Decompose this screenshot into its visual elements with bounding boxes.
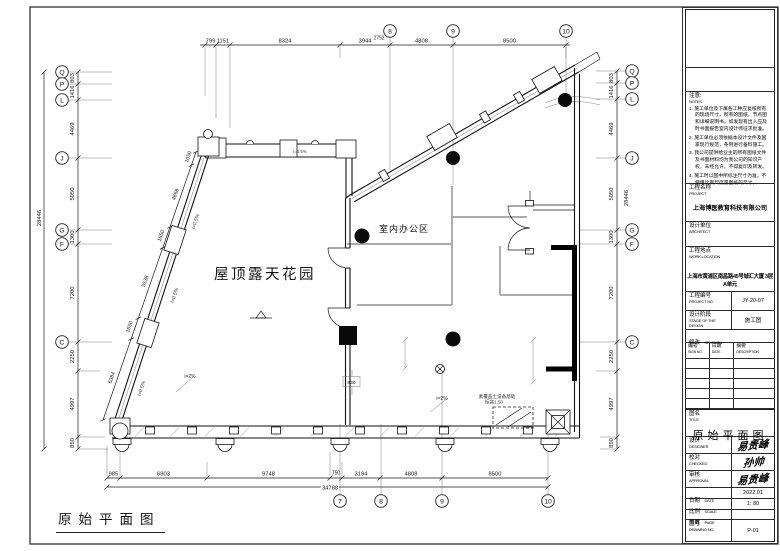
column-dot bbox=[558, 93, 572, 107]
titleblock-location: 工程地点 WORK LOCATION 上海市黄浦区南昌路45号城汇大厦 3层A单… bbox=[686, 247, 774, 292]
room-label-garden: 屋顶露天花园 bbox=[214, 266, 316, 283]
titleblock-project: 工程名称 PROJECT 上海博医教育科技有限公司 bbox=[686, 184, 774, 222]
titleblock-project-no: 工程编号PROJECT NO. JY-20-07 bbox=[686, 292, 774, 311]
sheet-border bbox=[30, 7, 778, 544]
note-item: 3. 我公司提供给业主的所有图纸文件及书面材料均为我公司的知识产权，未经允许，不… bbox=[689, 151, 771, 171]
dim-text: 850 bbox=[609, 438, 615, 448]
equipment-foundation bbox=[493, 407, 533, 428]
dim-text: 6803 bbox=[157, 472, 170, 478]
dim-text: 5050 bbox=[70, 188, 76, 201]
slope-label: i=0.5% bbox=[293, 149, 307, 154]
dim-text: 803 bbox=[70, 73, 76, 83]
grid-bubble-label: G bbox=[629, 227, 634, 234]
equipment-level-label: 标高1.50 bbox=[485, 399, 504, 406]
revision-empty-row bbox=[686, 399, 774, 409]
scale-value: 1: 80 bbox=[732, 499, 774, 509]
grid-bubble-label: L bbox=[630, 96, 634, 103]
dim-text: 1151 bbox=[217, 39, 229, 45]
dim-text: 34788 bbox=[322, 485, 338, 491]
grid-bubble-label: 10 bbox=[562, 28, 570, 35]
note-item: 1. 施工单位及下属各工种应复核所有的现场尺寸，所有的图纸，节点图和详细说明书，… bbox=[689, 107, 771, 134]
titleblock-drawing-no: 图号DRAWING NO. P-01 bbox=[686, 520, 774, 541]
dim-text: 2752 bbox=[373, 36, 384, 42]
grid-bubbles: 8 9 10 7 8 9 10 Q P L J G F C Q P L J bbox=[56, 25, 639, 508]
drawing-no-label-en: DRAWING NO. bbox=[689, 528, 728, 533]
grid-bubble-label: Q bbox=[59, 69, 64, 76]
grid-bubble-label: F bbox=[630, 241, 634, 248]
slope-label: i=0.5% bbox=[137, 380, 148, 397]
grid-bubble-label: P bbox=[630, 80, 635, 87]
revision-empty-row bbox=[686, 369, 774, 379]
dim-text: 4808 bbox=[405, 472, 418, 478]
rev-col3-en: DESCRIPTION bbox=[736, 350, 772, 354]
revision-table-header: 编号SIGN NO. 日期DATE 摘要DESCRIPTION bbox=[686, 343, 774, 359]
titleblock-date: 日期 DATE 2022.01 bbox=[686, 488, 774, 499]
dim-text: 1300 bbox=[609, 231, 615, 244]
location-label-en: WORK LOCATION bbox=[689, 255, 771, 260]
revision-empty-row bbox=[686, 379, 774, 389]
grid-bubble-label: 10 bbox=[544, 498, 552, 505]
revision-empty-row bbox=[686, 359, 774, 369]
slope-label: i=2% bbox=[436, 396, 448, 402]
titleblock-logo-box bbox=[686, 10, 774, 68]
dim-text: 2250 bbox=[609, 350, 615, 363]
project-no-label-en: PROJECT NO. bbox=[689, 300, 728, 305]
grid-bubble-label: G bbox=[59, 227, 64, 234]
grid-bubble-label: C bbox=[630, 339, 635, 346]
grid-bubble-label: J bbox=[630, 155, 633, 162]
dim-text: 5538 bbox=[141, 275, 151, 288]
dim-text: 5050 bbox=[609, 188, 615, 201]
dim-text: 9748 bbox=[262, 472, 275, 478]
dim-text: 1650 bbox=[157, 229, 167, 242]
title-label-cn: 图名 bbox=[689, 411, 771, 418]
titleblock-architect: 设计单位 ARCHITECT bbox=[686, 222, 774, 247]
dim-text: 4469 bbox=[70, 123, 76, 136]
dim-text: 8500 bbox=[503, 39, 516, 45]
location-value: 上海市黄浦区南昌路45号城汇大厦 3层A单元 bbox=[687, 272, 773, 288]
titleblock-scale: 比例 SCALE 1: 80 bbox=[686, 499, 774, 510]
dim-text: 7200 bbox=[609, 287, 615, 300]
dim-text: 830 bbox=[347, 380, 355, 386]
titleblock-revision: 修改 REVISION bbox=[686, 330, 774, 343]
dim-text: 799 bbox=[206, 39, 216, 45]
drawing-sheet: 799 1151 8324 3944 4808 8500 2752 803 14… bbox=[0, 0, 780, 551]
dim-text: 1050 bbox=[184, 150, 194, 163]
project-label-en: PROJECT bbox=[689, 192, 771, 197]
dim-text: 28446 bbox=[37, 210, 43, 226]
dim-text: 3194 bbox=[355, 472, 369, 478]
date-value: 2022.01 bbox=[732, 488, 774, 498]
thick-wall bbox=[546, 248, 577, 382]
stage-label-en: STAGE OF THE DESIGN bbox=[689, 319, 728, 329]
grid-bubble-label: L bbox=[60, 97, 64, 104]
titleblock-stage: 设计阶段STAGE OF THE DESIGN 施工图 bbox=[686, 311, 774, 330]
checked-label-en: CHECKED bbox=[689, 462, 728, 467]
titleblock: 注意: NOTES: 1. 施工单位及下属各工种应复核所有的现场尺寸，所有的图纸… bbox=[682, 7, 778, 544]
slope-label: i=2% bbox=[184, 374, 196, 380]
dim-text: 28446 bbox=[624, 190, 630, 206]
titleblock-approval: 审核APPROVAL 易贵峰 bbox=[686, 471, 774, 488]
plan-labels: 屋顶露天花园 室内办公区 素覆盖土设备基础 标高1.50 i=0.5% i=0.… bbox=[137, 149, 516, 412]
dim-text: 750 bbox=[332, 471, 341, 477]
dim-text: 4997 bbox=[70, 398, 76, 411]
dim-text: 850 bbox=[70, 438, 76, 448]
approval-label-en: APPROVAL bbox=[689, 479, 728, 484]
column-dot bbox=[446, 151, 460, 165]
dim-text: 985 bbox=[109, 472, 119, 478]
titleblock-notes: 注意: NOTES: 1. 施工单位及下属各工种应复核所有的现场尺寸，所有的图纸… bbox=[686, 92, 774, 184]
titleblock-title: 图名 TITLE 原始平面图 bbox=[686, 409, 774, 437]
rev-col2-en: DATE bbox=[712, 350, 732, 354]
slope-label: i=0.5% bbox=[170, 287, 181, 304]
rev-col1-en: SIGN NO. bbox=[688, 350, 707, 354]
dim-text: 1650 bbox=[125, 320, 135, 333]
architect-label-en: ARCHITECT bbox=[689, 230, 771, 235]
grid-bubble-label: F bbox=[60, 241, 64, 248]
revision-empty-row bbox=[686, 389, 774, 399]
dim-text: 1300 bbox=[70, 231, 76, 244]
grid-bubble-label: 9 bbox=[451, 28, 455, 35]
dim-text: 1416 bbox=[609, 86, 615, 99]
floor-plan-canvas: 799 1151 8324 3944 4808 8500 2752 803 14… bbox=[0, 0, 780, 551]
shaft-solid bbox=[339, 326, 357, 345]
titleblock-checked: 校对CHECKED 孙帅 bbox=[686, 454, 774, 471]
dim-text: 6384 bbox=[107, 371, 117, 384]
column-dot bbox=[355, 229, 370, 244]
dim-text: 803 bbox=[609, 73, 615, 83]
grid-bubble-label: Q bbox=[629, 68, 634, 75]
designer-signature: 易贵峰 bbox=[737, 436, 769, 454]
grid-bubble-label: 9 bbox=[440, 498, 444, 505]
room-label-office: 室内办公区 bbox=[379, 223, 429, 234]
grid-bubble-label: J bbox=[60, 155, 63, 162]
page-value bbox=[732, 510, 774, 519]
dim-text: 1416 bbox=[70, 86, 76, 99]
dim-text: 8500 bbox=[489, 472, 502, 478]
dim-text: 8324 bbox=[279, 39, 293, 45]
designer-label-en: DESIGNER bbox=[689, 445, 728, 450]
grid-bubble-label: 8 bbox=[379, 498, 383, 505]
notes-label-en: NOTES: bbox=[689, 100, 771, 105]
dim-text: 2250 bbox=[70, 350, 76, 363]
titleblock-page: 页数 PAGE bbox=[686, 510, 774, 520]
grid-bubble-label: 7 bbox=[338, 498, 342, 505]
project-no-value: JY-20-07 bbox=[732, 292, 774, 310]
stage-value: 施工图 bbox=[732, 311, 774, 329]
dim-text: 4469 bbox=[609, 123, 615, 136]
grid-bubble-label: P bbox=[60, 81, 65, 88]
column-dot bbox=[446, 332, 461, 347]
drawing-no-value: P-01 bbox=[732, 520, 774, 541]
approval-signature: 易贵峰 bbox=[737, 470, 769, 488]
dim-text: 3944 bbox=[359, 39, 373, 45]
checked-signature: 孙帅 bbox=[742, 453, 764, 470]
dim-text: 7200 bbox=[70, 287, 76, 300]
note-item: 2. 施工单位必须依据本设计文件及国家现行规范，条例进行备料施工。 bbox=[689, 136, 771, 150]
title-label-en: TITLE bbox=[689, 418, 771, 423]
grid-bubble-label: C bbox=[60, 339, 65, 346]
dim-text: 4997 bbox=[609, 398, 615, 411]
grid-bubble-label: 8 bbox=[388, 28, 392, 35]
dim-text: 4808 bbox=[415, 39, 428, 45]
project-name: 上海博医教育科技有限公司 bbox=[689, 203, 771, 212]
slope-label: i=0.5% bbox=[191, 213, 202, 230]
sheet-caption: 原始平面图 bbox=[56, 508, 165, 533]
titleblock-empty-box bbox=[686, 68, 774, 92]
titleblock-designer: 设计DESIGNER 易贵峰 bbox=[686, 437, 774, 454]
